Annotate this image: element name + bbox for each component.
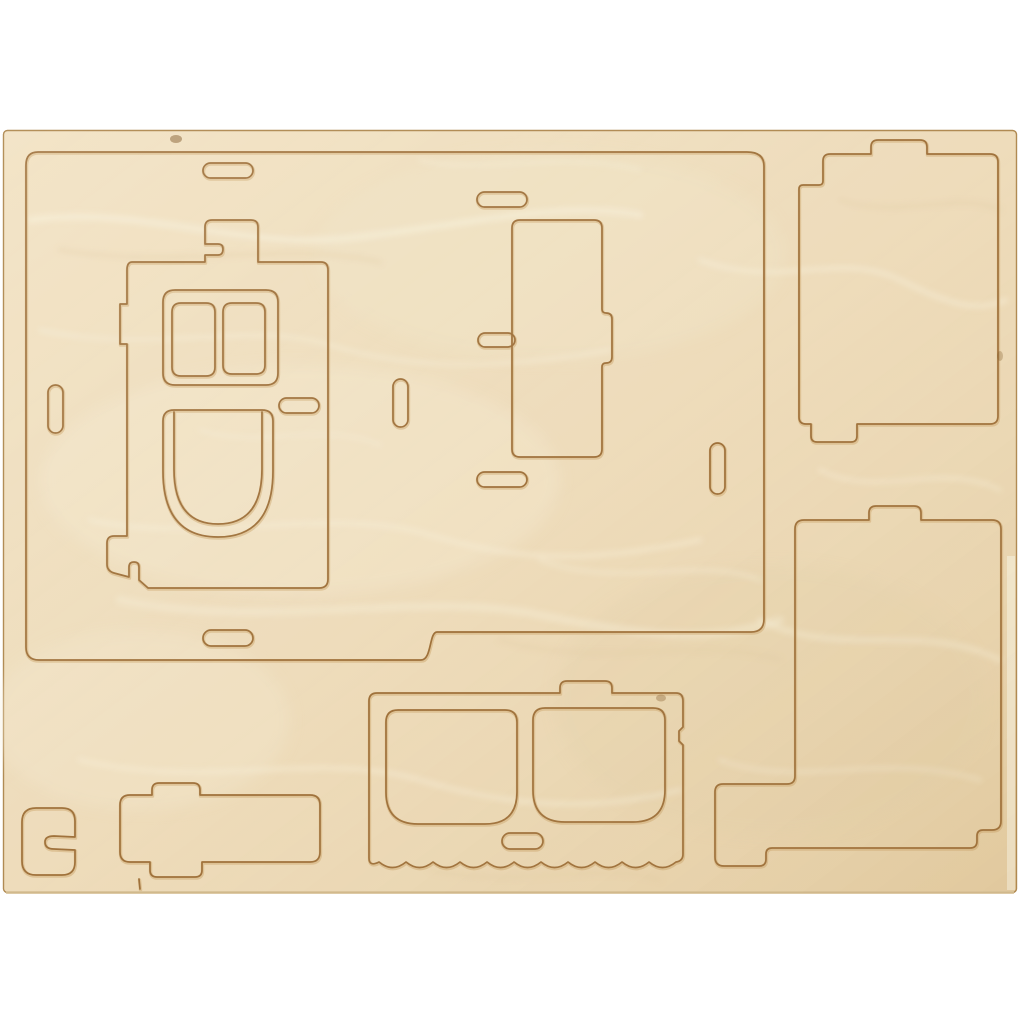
plywood-sheet: [0, 131, 1017, 895]
sheet-side-edge: [1007, 556, 1015, 890]
plywood-kit-illustration: [0, 0, 1024, 1024]
product-photo: [0, 0, 1024, 1024]
sheet-bottom-shadow: [6, 891, 1014, 894]
